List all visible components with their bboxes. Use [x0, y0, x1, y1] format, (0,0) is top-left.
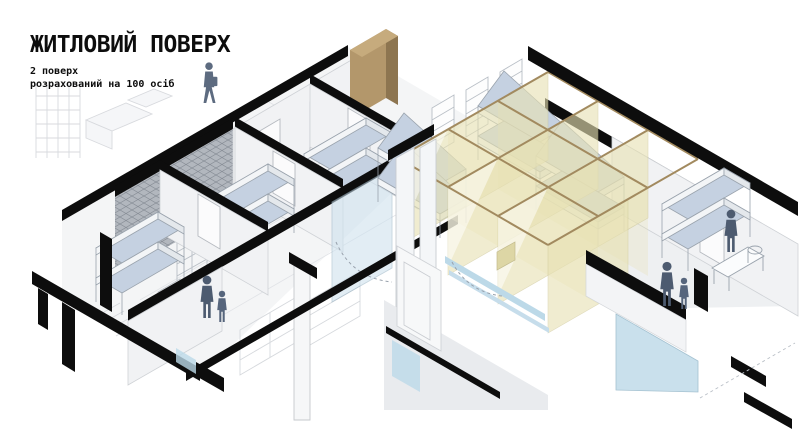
header: ЖИТЛОВИЙ ПОВЕРХ 2 поверх розрахований на… — [30, 32, 230, 91]
page-title: ЖИТЛОВИЙ ПОВЕРХ — [30, 32, 230, 58]
page-subtitle: 2 поверх розрахований на 100 осіб — [30, 65, 230, 91]
right-axonometric-view — [378, 46, 798, 429]
background-furniture-sketch — [36, 84, 172, 158]
residential-floor-illustration: ЖИТЛОВИЙ ПОВЕРХ 2 поверх розрахований на… — [0, 0, 800, 429]
subtitle-line-2: розрахований на 100 осіб — [30, 78, 230, 91]
subtitle-line-1: 2 поверх — [30, 65, 230, 78]
wall-cut-piece — [744, 392, 792, 429]
guide-dashed-line — [700, 343, 795, 398]
wall-cut-piece — [731, 356, 766, 387]
